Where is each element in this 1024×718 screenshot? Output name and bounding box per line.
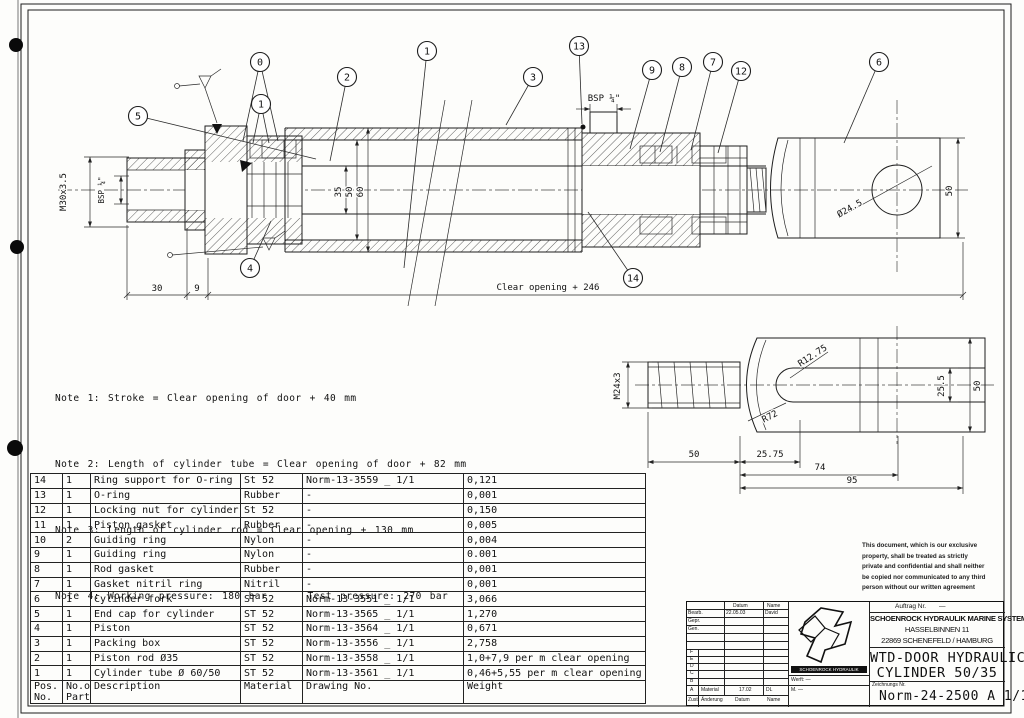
cell-drawing: Norm-13-3565 _ 1/1 xyxy=(303,607,464,622)
cell-material: St 52 xyxy=(241,503,303,518)
cell-desc: Cylinder fork xyxy=(91,592,241,607)
cell-pos: 14 xyxy=(31,474,63,489)
cell-qty: 1 xyxy=(63,607,91,622)
dim-50: 50 xyxy=(345,187,355,198)
cell-drawing: - xyxy=(303,562,464,577)
dim-clear-opening: Clear opening + 246 xyxy=(497,283,600,293)
table-row: 21Piston rod Ø35ST 52Norm-13-3558 _ 1/11… xyxy=(31,651,646,666)
cell-drawing: Norm-13-3559 _ 1/1 xyxy=(303,474,464,489)
rev-header-name: Name xyxy=(767,603,780,610)
cell-qty: 1 xyxy=(63,577,91,592)
table-row: 61Cylinder forkST 52Norm-13-3551 _ 1/13,… xyxy=(31,592,646,607)
cell-drawing: - xyxy=(303,488,464,503)
cell-desc: Piston gasket xyxy=(91,518,241,533)
rev-a-material: Material xyxy=(701,687,719,694)
cell-desc: Guiding ring xyxy=(91,533,241,548)
disclaimer-line: property, shall be treated as strictly xyxy=(862,552,1012,563)
cell-qty: 1 xyxy=(63,666,91,681)
cell-desc: Cylinder tube Ø 60/50 xyxy=(91,666,241,681)
note-line: Note 1: Stroke = Clear opening of door +… xyxy=(55,388,467,410)
cell-drawing: - xyxy=(303,577,464,592)
cell-pos: 4 xyxy=(31,621,63,636)
cylinder-section-view xyxy=(58,69,968,306)
dim-bsp-left: BSP ¼" xyxy=(97,176,106,203)
header-drawing-no: Drawing No. xyxy=(303,681,464,704)
disclaimer-line: This document, which is our exclusive xyxy=(862,541,1012,552)
disclaimer-line: be copied nor communicated to any third xyxy=(862,573,1012,584)
cell-weight: 0,671 xyxy=(464,621,646,636)
drawing-no-label: Zeichnungs Nr. xyxy=(872,682,906,689)
cell-material: ST 52 xyxy=(241,621,303,636)
werft-row: Werft: — xyxy=(791,677,811,684)
dim-bsp-right: BSP ¼" xyxy=(588,94,621,104)
cell-pos: 12 xyxy=(31,503,63,518)
cell-drawing: - xyxy=(303,503,464,518)
table-row: 102Guiding ringNylon-0,004 xyxy=(31,533,646,548)
cell-drawing: - xyxy=(303,533,464,548)
cell-desc: Rod gasket xyxy=(91,562,241,577)
header-weight: Weight xyxy=(464,681,646,704)
dim-slot-width: 25.5 xyxy=(937,375,947,397)
cell-drawing: - xyxy=(303,518,464,533)
rev-a-name: DL xyxy=(766,687,772,694)
cell-material: Nylon xyxy=(241,547,303,562)
cell-material: ST 52 xyxy=(241,607,303,622)
cell-pos: 10 xyxy=(31,533,63,548)
table-row: 51End cap for cylinderST 52Norm-13-3565 … xyxy=(31,607,646,622)
balloon-leader xyxy=(844,62,879,143)
rev-bearb-name: David xyxy=(765,610,778,617)
auftrag-label: Auftrag Nr. xyxy=(895,603,926,611)
rev-letter-a: A xyxy=(690,687,693,694)
fork-detail-view: R12.75 R72 M24x3 50 25.75 74 95 25.5 50 xyxy=(613,326,995,494)
cell-weight: 0.001 xyxy=(464,547,646,562)
table-row: 141Ring support for O-ringSt 52Norm-13-3… xyxy=(31,474,646,489)
m-row: M. — xyxy=(791,687,803,694)
rev-name-label: Name xyxy=(767,697,780,704)
cell-qty: 2 xyxy=(63,533,91,548)
balloon-label: 6 xyxy=(876,58,882,69)
cell-weight: 1,270 xyxy=(464,607,646,622)
cell-material: ST 52 xyxy=(241,592,303,607)
balloon-leader xyxy=(718,71,741,153)
dim-f2575: 25.75 xyxy=(756,450,783,460)
dim-m30: M30x3.5 xyxy=(59,173,69,211)
cell-qty: 1 xyxy=(63,562,91,577)
rev-datum-label: Datum xyxy=(735,697,750,704)
cell-material: Nitril xyxy=(241,577,303,592)
cell-weight: 0,150 xyxy=(464,503,646,518)
header-qty: No.ofParts xyxy=(63,681,91,704)
dim-60: 60 xyxy=(356,187,366,198)
rev-letter: C xyxy=(690,670,694,677)
dim-fork-height: 50 xyxy=(945,186,955,197)
cell-drawing: Norm-13-3551 _ 1/1 xyxy=(303,592,464,607)
table-row: 11Cylinder tube Ø 60/50ST 52Norm-13-3561… xyxy=(31,666,646,681)
parts-table-header: Pos.No. No.ofParts Description Material … xyxy=(31,681,646,704)
cell-weight: 0,005 xyxy=(464,518,646,533)
balloon-label: 0 xyxy=(257,58,263,69)
cell-drawing: Norm-13-3556 _ 1/1 xyxy=(303,636,464,651)
cell-qty: 1 xyxy=(63,636,91,651)
cell-desc: Piston rod Ø35 xyxy=(91,651,241,666)
rev-header-datum: Datum xyxy=(733,603,748,610)
cell-material: Rubber xyxy=(241,488,303,503)
cell-pos: 8 xyxy=(31,562,63,577)
cell-qty: 1 xyxy=(63,518,91,533)
cell-material: Rubber xyxy=(241,562,303,577)
rev-letter: B xyxy=(690,678,693,685)
auftrag-value: — xyxy=(939,603,946,611)
rev-gen-label: Gen. xyxy=(688,626,699,633)
rev-zust-label: Zust. xyxy=(688,697,699,704)
cell-pos: 9 xyxy=(31,547,63,562)
balloon-label: 1 xyxy=(258,100,264,111)
dim-f95: 95 xyxy=(847,476,858,486)
table-row: 91Guiding ringNylon-0.001 xyxy=(31,547,646,562)
dim-m24: M24x3 xyxy=(613,372,623,399)
disclaimer-line: private and confidential and shall neith… xyxy=(862,562,1012,573)
cell-qty: 1 xyxy=(63,547,91,562)
balloon-label: 13 xyxy=(573,42,585,53)
cell-weight: 0,001 xyxy=(464,488,646,503)
cell-material: ST 52 xyxy=(241,666,303,681)
cell-weight: 3,066 xyxy=(464,592,646,607)
cell-desc: Ring support for O-ring xyxy=(91,474,241,489)
table-row: 31Packing boxST 52Norm-13-3556 _ 1/12,75… xyxy=(31,636,646,651)
cell-desc: Guiding ring xyxy=(91,547,241,562)
dim-30: 30 xyxy=(152,284,163,294)
balloon-label: 5 xyxy=(135,112,141,123)
cell-pos: 5 xyxy=(31,607,63,622)
balloon-label: 12 xyxy=(735,67,747,78)
rev-bearb-date: 22.05.03 xyxy=(726,610,745,617)
rev-aenderung-label: Änderung xyxy=(701,697,723,704)
dim-9: 9 xyxy=(194,284,199,294)
rev-bearb-label: Bearb. xyxy=(688,610,703,617)
rev-letter: D xyxy=(690,663,694,670)
cell-qty: 1 xyxy=(63,488,91,503)
balloon-leader xyxy=(691,62,713,150)
cell-weight: 0,004 xyxy=(464,533,646,548)
cell-desc: Packing box xyxy=(91,636,241,651)
confidentiality-notice: This document, which is our exclusive pr… xyxy=(862,541,1012,594)
cell-material: ST 52 xyxy=(241,636,303,651)
dim-fork-od: 50 xyxy=(973,381,983,392)
rev-letter: E xyxy=(690,656,693,663)
cell-weight: 2,758 xyxy=(464,636,646,651)
cell-qty: 1 xyxy=(63,474,91,489)
drawing-title-line2: CYLINDER 50/35 xyxy=(870,665,1004,681)
company-name: SCHOENROCK HYDRAULIK MARINE SYSTEMS GmbH xyxy=(870,613,1004,624)
balloon-label: 7 xyxy=(710,58,716,69)
header-description: Description xyxy=(91,681,241,704)
cell-material: Nylon xyxy=(241,533,303,548)
cell-pos: 13 xyxy=(31,488,63,503)
cell-desc: End cap for cylinder xyxy=(91,607,241,622)
balloon-leader xyxy=(330,77,347,161)
header-pos: Pos.No. xyxy=(31,681,63,704)
cell-desc: Piston xyxy=(91,621,241,636)
cell-drawing: - xyxy=(303,547,464,562)
table-row: 81Rod gasketRubber-0,001 xyxy=(31,562,646,577)
balloon-label: 9 xyxy=(649,66,655,77)
cell-desc: O-ring xyxy=(91,488,241,503)
cell-pos: 3 xyxy=(31,636,63,651)
rev-letter: F xyxy=(690,649,693,656)
balloon-label: 4 xyxy=(247,264,253,275)
cell-material: St 52 xyxy=(241,474,303,489)
table-row: 131O-ringRubber-0,001 xyxy=(31,488,646,503)
title-block: Datum Name Bearb. 22.05.03 David Gepr. G… xyxy=(686,601,1004,706)
dim-f74: 74 xyxy=(815,463,826,473)
table-row: 41PistonST 52Norm-13-3564 _ 1/10,671 xyxy=(31,621,646,636)
cell-weight: 0,46+5,55 per m clear opening xyxy=(464,666,646,681)
cell-pos: 11 xyxy=(31,518,63,533)
cell-qty: 1 xyxy=(63,592,91,607)
cell-weight: 0,121 xyxy=(464,474,646,489)
cell-qty: 1 xyxy=(63,651,91,666)
logo-banner: SCHOENROCK HYDRAULIK xyxy=(791,666,867,673)
cell-weight: 0,001 xyxy=(464,562,646,577)
cell-desc: Gasket nitril ring xyxy=(91,577,241,592)
cell-drawing: Norm-13-3564 _ 1/1 xyxy=(303,621,464,636)
company-address-1: HASSELBINNEN 11 xyxy=(870,624,1004,635)
balloon-label: 8 xyxy=(679,63,685,74)
cell-qty: 1 xyxy=(63,503,91,518)
dim-r72: R72 xyxy=(761,409,780,425)
balloon-leader xyxy=(579,46,582,124)
cell-drawing: Norm-13-3561 _ 1/1 xyxy=(303,666,464,681)
table-row: 71Gasket nitril ringNitril-0,001 xyxy=(31,577,646,592)
company-address-2: 22869 SCHENEFELD / HAMBURG xyxy=(870,635,1004,646)
header-material: Material xyxy=(241,681,303,704)
table-row: 111Piston gasketRubber-0,005 xyxy=(31,518,646,533)
parts-table: 141Ring support for O-ringSt 52Norm-13-3… xyxy=(30,473,646,704)
cell-pos: 7 xyxy=(31,577,63,592)
disclaimer-line: person without our written agreement xyxy=(862,583,1012,594)
company-logo xyxy=(791,604,867,666)
cell-pos: 1 xyxy=(31,666,63,681)
rev-a-date: 17.02 xyxy=(739,687,752,694)
balloon-label: 2 xyxy=(344,73,350,84)
cell-material: ST 52 xyxy=(241,651,303,666)
cell-pos: 6 xyxy=(31,592,63,607)
cell-pos: 2 xyxy=(31,651,63,666)
drawing-title-line1: WTD-DOOR HYDRAULIC xyxy=(870,650,1004,666)
balloon-leader xyxy=(404,51,427,268)
engineering-drawing-sheet: M30x3.5 BSP ¼" 30 9 Clear opening + 246 … xyxy=(0,0,1024,718)
balloon-label: 3 xyxy=(530,73,536,84)
cell-weight: 1,0+7,9 per m clear opening xyxy=(464,651,646,666)
dim-f50: 50 xyxy=(689,450,700,460)
cell-weight: 0,001 xyxy=(464,577,646,592)
balloon-label: 1 xyxy=(424,47,430,58)
divider xyxy=(788,602,789,707)
table-row: 121Locking nut for cylinderSt 52-0,150 xyxy=(31,503,646,518)
dim-35: 35 xyxy=(334,187,344,198)
cell-qty: 1 xyxy=(63,621,91,636)
surface-finish-symbol xyxy=(175,69,222,123)
cell-material: Rubber xyxy=(241,518,303,533)
cell-desc: Locking nut for cylinder xyxy=(91,503,241,518)
dim-hole-dia: Ø24.5 xyxy=(835,197,864,220)
cell-drawing: Norm-13-3558 _ 1/1 xyxy=(303,651,464,666)
balloon-label: 14 xyxy=(627,274,639,285)
dim-r1275: R12.75 xyxy=(797,343,830,369)
drawing-number: Norm-24-2500 A 1/1 xyxy=(879,689,1024,704)
rev-gepr-label: Gepr. xyxy=(688,618,700,625)
